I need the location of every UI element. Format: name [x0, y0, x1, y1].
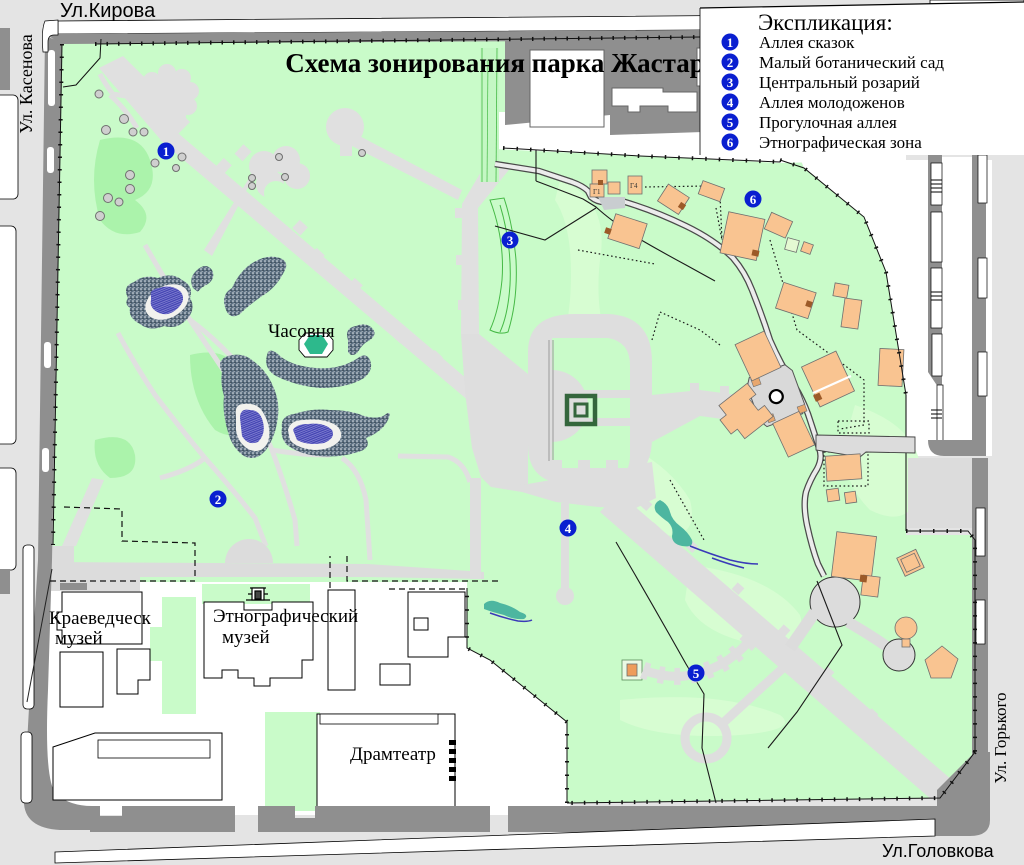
- svg-text:Аллея молодоженов: Аллея молодоженов: [759, 93, 905, 112]
- svg-text:Схема зонирования парка Жастар: Схема зонирования парка Жастар: [285, 48, 705, 78]
- svg-text:музей: музей: [222, 627, 270, 648]
- svg-text:Ул. Горького: Ул. Горького: [991, 692, 1010, 783]
- svg-text:Краеведческ: Краеведческ: [49, 608, 152, 629]
- svg-text:1: 1: [163, 144, 170, 159]
- svg-text:Ул.Головкова: Ул.Головкова: [882, 841, 995, 861]
- svg-text:Аллея сказок: Аллея сказок: [759, 33, 855, 52]
- svg-text:6: 6: [727, 135, 734, 150]
- svg-text:музей: музей: [55, 628, 103, 649]
- svg-text:3: 3: [727, 75, 734, 90]
- svg-text:Ул.Кирова: Ул.Кирова: [60, 0, 156, 22]
- svg-text:1: 1: [727, 35, 734, 50]
- svg-text:3: 3: [507, 233, 514, 248]
- svg-text:5: 5: [727, 115, 734, 130]
- svg-text:Этнографический: Этнографический: [213, 606, 358, 627]
- svg-text:Ул. Касенова: Ул. Касенова: [16, 34, 36, 134]
- svg-text:Малый ботанический сад: Малый ботанический сад: [759, 53, 944, 72]
- svg-text:5: 5: [693, 666, 700, 681]
- svg-text:4: 4: [565, 521, 572, 536]
- svg-text:Прогулочная аллея: Прогулочная аллея: [759, 113, 897, 132]
- svg-text:2: 2: [727, 55, 734, 70]
- svg-text:2: 2: [215, 492, 222, 507]
- svg-text:Экспликация:: Экспликация:: [758, 10, 893, 35]
- svg-text:6: 6: [750, 192, 757, 207]
- svg-text:Часовня: Часовня: [268, 321, 335, 342]
- svg-text:Драмтеатр: Драмтеатр: [350, 744, 436, 765]
- svg-text:Г1: Г1: [593, 188, 601, 196]
- svg-text:4: 4: [727, 95, 734, 110]
- svg-text:Этнографическая зона: Этнографическая зона: [759, 133, 922, 152]
- svg-text:Центральный розарий: Центральный розарий: [759, 73, 920, 92]
- svg-text:Г4: Г4: [630, 182, 638, 190]
